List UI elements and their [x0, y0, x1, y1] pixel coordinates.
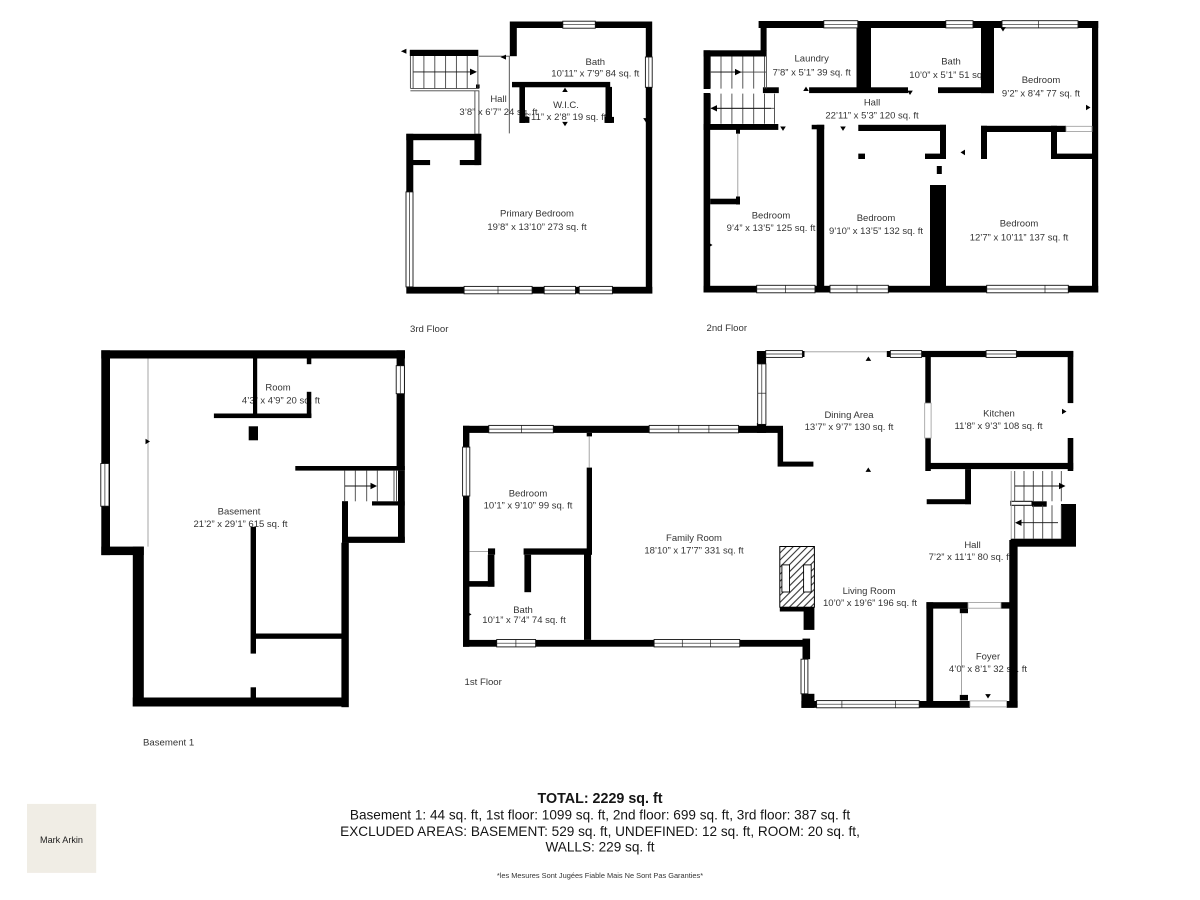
- svg-text:3rd Floor: 3rd Floor: [410, 324, 449, 335]
- svg-text:18’10” x 17’7” 331 sq. ft: 18’10” x 17’7” 331 sq. ft: [644, 546, 744, 557]
- svg-text:Living Room: Living Room: [843, 586, 896, 597]
- svg-text:Family Room: Family Room: [666, 533, 722, 544]
- svg-text:10’0” x 5’1” 51 sq. ft: 10’0” x 5’1” 51 sq. ft: [909, 70, 993, 81]
- svg-text:10’1” x 7’4” 74 sq. ft: 10’1” x 7’4” 74 sq. ft: [482, 615, 566, 626]
- svg-text:5’11” x 2’8” 19 sq. ft: 5’11” x 2’8” 19 sq. ft: [524, 112, 607, 123]
- svg-text:Bath: Bath: [586, 57, 606, 68]
- svg-text:Foyer: Foyer: [976, 652, 1000, 663]
- svg-text:1st Floor: 1st Floor: [465, 677, 503, 688]
- svg-text:7’8” x 5’1” 39 sq. ft: 7’8” x 5’1” 39 sq. ft: [773, 68, 852, 79]
- svg-text:Dining Area: Dining Area: [824, 410, 874, 421]
- svg-text:Bedroom: Bedroom: [509, 489, 548, 500]
- svg-text:Mark Arkin: Mark Arkin: [40, 835, 83, 845]
- svg-text:Primary Bedroom: Primary Bedroom: [500, 209, 574, 220]
- svg-text:Hall: Hall: [964, 540, 980, 551]
- svg-text:19’8” x 13’10” 273 sq. ft: 19’8” x 13’10” 273 sq. ft: [487, 222, 587, 233]
- svg-text:Bedroom: Bedroom: [1022, 75, 1061, 86]
- svg-text:9’4” x 13’5” 125 sq. ft: 9’4” x 13’5” 125 sq. ft: [727, 223, 816, 234]
- svg-text:Laundry: Laundry: [795, 54, 830, 65]
- svg-text:EXCLUDED AREAS: BASEMENT: 529: EXCLUDED AREAS: BASEMENT: 529 sq. ft, UN…: [340, 824, 860, 839]
- svg-text:22’11” x 5’3” 120 sq. ft: 22’11” x 5’3” 120 sq. ft: [825, 111, 919, 122]
- svg-text:Bath: Bath: [941, 57, 961, 68]
- svg-text:*les Mesures Sont Jugées Fiabl: *les Mesures Sont Jugées Fiable Mais Ne …: [497, 871, 703, 880]
- svg-text:9’10” x 13’5” 132 sq. ft: 9’10” x 13’5” 132 sq. ft: [829, 226, 923, 237]
- svg-text:WALLS: 229 sq. ft: WALLS: 229 sq. ft: [545, 840, 654, 855]
- svg-text:10’0” x 19’6” 196 sq. ft: 10’0” x 19’6” 196 sq. ft: [823, 598, 917, 609]
- svg-text:Basement 1: 44 sq. ft, 1st flo: Basement 1: 44 sq. ft, 1st floor: 1099 s…: [350, 808, 850, 823]
- svg-text:W.I.C.: W.I.C.: [553, 100, 579, 111]
- svg-text:2nd Floor: 2nd Floor: [707, 323, 748, 334]
- svg-text:Room: Room: [265, 383, 290, 394]
- svg-text:13’7” x 9’7” 130 sq. ft: 13’7” x 9’7” 130 sq. ft: [805, 422, 894, 433]
- svg-text:Basement: Basement: [218, 506, 261, 517]
- svg-text:Bedroom: Bedroom: [1000, 219, 1039, 230]
- svg-text:Kitchen: Kitchen: [983, 409, 1015, 420]
- svg-text:TOTAL: 2229 sq. ft: TOTAL: 2229 sq. ft: [538, 791, 663, 807]
- svg-text:Hall: Hall: [490, 94, 506, 105]
- svg-text:7’2” x 11’1” 80 sq. ft: 7’2” x 11’1” 80 sq. ft: [929, 552, 1012, 563]
- svg-text:10’11” x 7’9” 84 sq. ft: 10’11” x 7’9” 84 sq. ft: [551, 69, 639, 80]
- svg-text:12’7” x 10’11” 137 sq. ft: 12’7” x 10’11” 137 sq. ft: [970, 233, 1069, 244]
- svg-text:9’2” x 8’4” 77 sq. ft: 9’2” x 8’4” 77 sq. ft: [1002, 89, 1081, 100]
- svg-text:Hall: Hall: [864, 98, 880, 109]
- svg-text:10’1” x 9’10” 99 sq. ft: 10’1” x 9’10” 99 sq. ft: [484, 501, 573, 512]
- svg-text:Basement 1: Basement 1: [143, 738, 194, 749]
- svg-text:21’2” x 29’1” 615 sq. ft: 21’2” x 29’1” 615 sq. ft: [194, 519, 288, 530]
- svg-text:11’8” x 9’3” 108 sq. ft: 11’8” x 9’3” 108 sq. ft: [954, 421, 1042, 432]
- svg-text:Bedroom: Bedroom: [857, 213, 896, 224]
- svg-text:Bedroom: Bedroom: [752, 211, 791, 222]
